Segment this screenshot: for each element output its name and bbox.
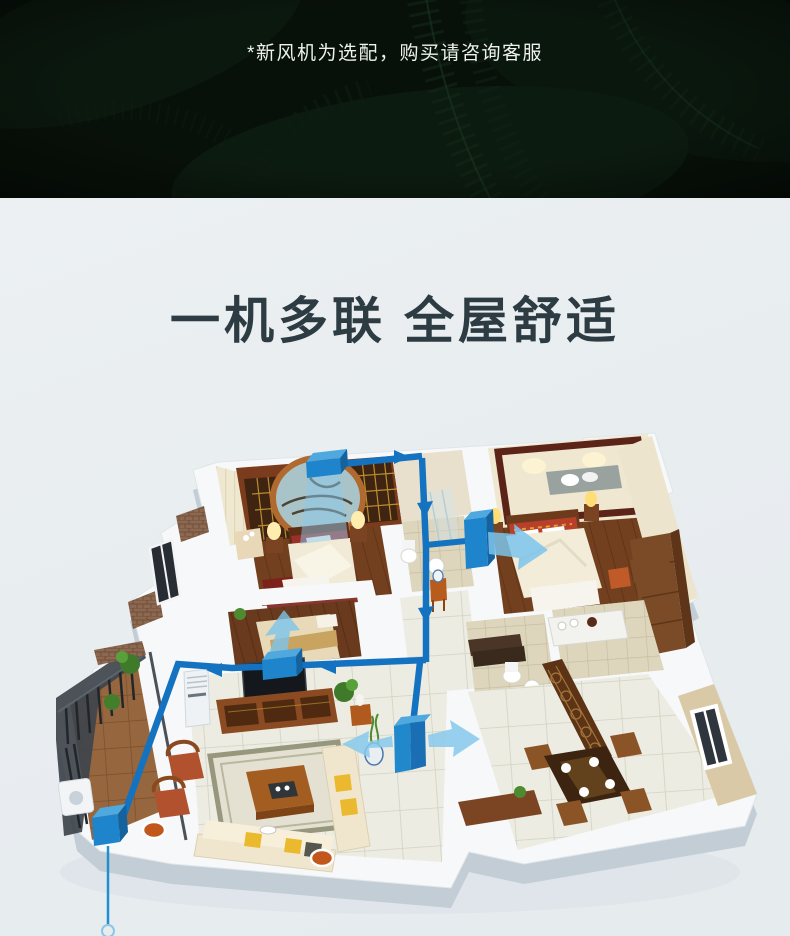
plate-3 xyxy=(579,787,589,797)
small-plant xyxy=(234,608,246,620)
cat-figurine xyxy=(356,694,364,706)
bench-plant xyxy=(514,786,526,798)
bedside-lamp xyxy=(267,522,281,540)
downlight-glow xyxy=(522,458,546,474)
outdoor-connection-circle xyxy=(102,925,114,936)
hero-banner: *新风机为选配，购买请咨询客服 xyxy=(0,0,790,198)
tea-tray xyxy=(268,781,298,799)
accent-chair xyxy=(608,567,631,589)
product-detail-section: *新风机为选配，购买请咨询客服 一机多联 全屋舒适 xyxy=(0,0,790,936)
plate-4 xyxy=(605,779,615,789)
armchair-2 xyxy=(154,788,190,818)
porcelain-vase xyxy=(433,570,443,582)
balcony-plant-2 xyxy=(104,694,120,710)
cat-side-table xyxy=(350,704,372,726)
bedside-lamp-4 xyxy=(585,491,597,507)
toilet xyxy=(401,549,417,563)
indoor-vent-master xyxy=(300,449,348,544)
feature-section: 一机多联 全屋舒适 xyxy=(0,198,790,936)
branch-pipe-bedroom2 xyxy=(426,541,466,545)
drum-stool-2 xyxy=(311,850,333,866)
dark-bowl xyxy=(587,617,597,627)
headline: 一机多联 全屋舒适 xyxy=(0,198,790,349)
bedside-lamp-2 xyxy=(351,511,365,529)
floor-plan-illustration xyxy=(0,376,790,936)
window-seat xyxy=(234,528,264,560)
pillow-3 xyxy=(316,614,338,628)
drum-stool xyxy=(143,822,165,838)
plate xyxy=(561,763,571,773)
plate-2 xyxy=(589,757,599,767)
bowl xyxy=(260,826,276,834)
hero-note: *新风机为选配，购买请咨询客服 xyxy=(0,38,790,65)
fern-background-image xyxy=(0,0,790,198)
